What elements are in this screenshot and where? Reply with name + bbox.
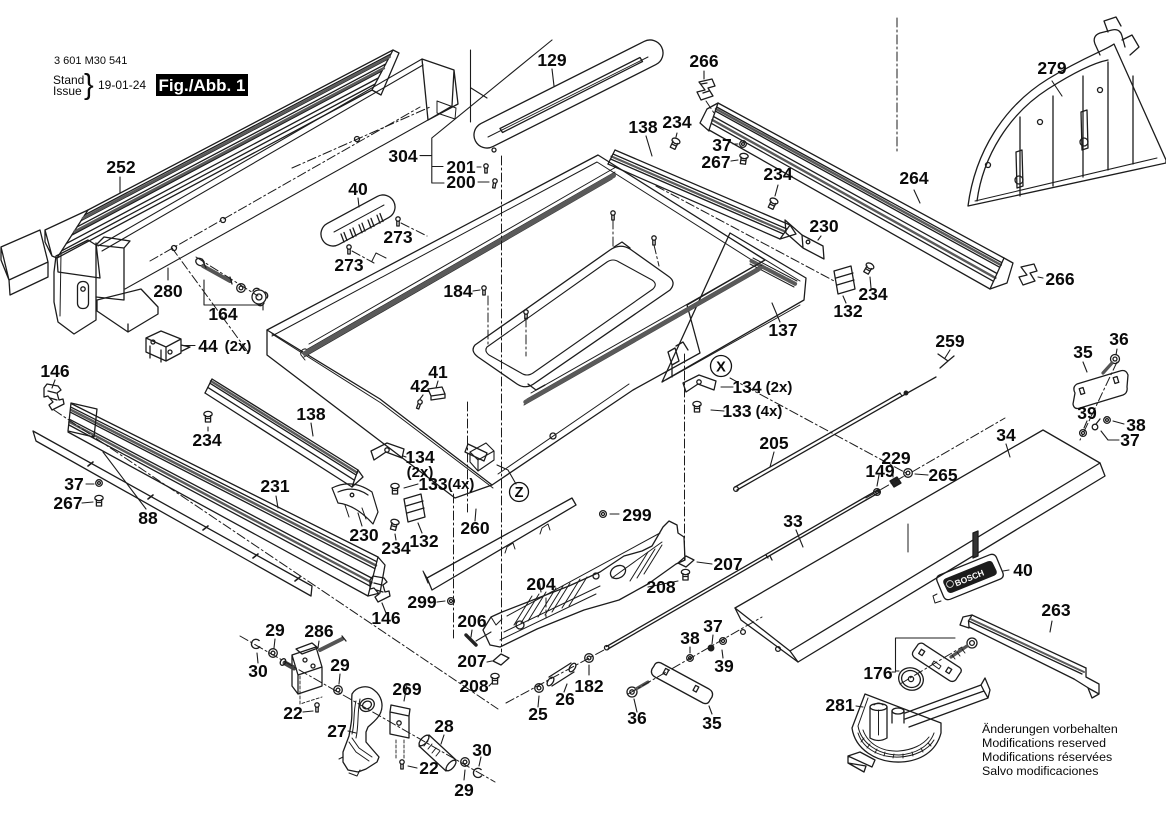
svg-text:29: 29 [454,780,474,800]
svg-text:266: 266 [1045,269,1074,289]
svg-text:40: 40 [1013,560,1033,580]
svg-text:133: 133 [722,401,751,421]
svg-text:(2x): (2x) [766,379,793,396]
svg-text:30: 30 [248,661,268,681]
svg-text:29: 29 [330,655,350,675]
svg-text:42: 42 [410,376,430,396]
svg-text:149: 149 [865,461,894,481]
svg-text:137: 137 [768,320,797,340]
svg-text:230: 230 [809,216,838,236]
svg-text:208: 208 [459,676,488,696]
svg-text:132: 132 [409,531,438,551]
svg-text:281: 281 [825,695,854,715]
svg-text:184: 184 [443,281,472,301]
svg-text:27: 27 [327,721,346,741]
svg-text:299: 299 [622,505,651,525]
svg-text:22: 22 [419,758,439,778]
svg-text:37: 37 [1120,430,1139,450]
svg-text:33: 33 [783,511,803,531]
svg-text:35: 35 [1073,342,1093,362]
svg-text:132: 132 [833,301,862,321]
svg-text:234: 234 [662,112,691,132]
svg-text:19-01-24: 19-01-24 [98,78,146,92]
svg-text:26: 26 [555,689,575,709]
svg-text:208: 208 [646,577,675,597]
svg-text:264: 264 [899,168,928,188]
svg-text:(2x): (2x) [225,338,252,355]
svg-text:206: 206 [457,611,486,631]
svg-text:259: 259 [935,331,964,351]
svg-text:36: 36 [627,708,647,728]
svg-text:207: 207 [713,554,742,574]
svg-text:279: 279 [1037,58,1066,78]
svg-text:265: 265 [928,465,957,485]
svg-text:231: 231 [260,476,289,496]
svg-text:182: 182 [574,676,603,696]
svg-text:Änderungen vorbehalten: Änderungen vorbehalten [982,722,1118,736]
svg-text:3 601 M30 541: 3 601 M30 541 [54,55,127,67]
svg-text:38: 38 [680,628,700,648]
svg-text:299: 299 [407,592,436,612]
svg-text:138: 138 [296,404,325,424]
svg-text:}: } [84,69,94,101]
svg-text:Fig./Abb. 1: Fig./Abb. 1 [159,76,246,95]
svg-text:28: 28 [434,716,454,736]
svg-text:129: 129 [537,50,566,70]
svg-text:134: 134 [732,377,761,397]
svg-text:22: 22 [283,703,303,723]
svg-text:200: 200 [446,172,475,192]
svg-text:Modifications reserved: Modifications reserved [982,736,1106,750]
svg-text:267: 267 [53,493,82,513]
svg-text:30: 30 [472,740,492,760]
svg-text:286: 286 [304,621,333,641]
svg-text:Salvo modificaciones: Salvo modificaciones [982,764,1098,778]
svg-text:40: 40 [348,179,368,199]
svg-text:204: 204 [526,574,555,594]
svg-text:267: 267 [701,152,730,172]
svg-text:Z: Z [515,485,524,501]
svg-text:44: 44 [198,336,218,356]
svg-text:35: 35 [702,713,722,733]
svg-text:Modifications réservées: Modifications réservées [982,750,1112,764]
svg-text:34: 34 [996,425,1016,445]
svg-text:Issue: Issue [53,84,82,98]
svg-text:266: 266 [689,51,718,71]
svg-text:304: 304 [388,146,417,166]
svg-text:88: 88 [138,508,158,528]
svg-text:252: 252 [106,157,135,177]
svg-text:(4x): (4x) [756,403,783,420]
svg-text:234: 234 [763,164,792,184]
svg-text:234: 234 [192,430,221,450]
svg-text:25: 25 [528,704,548,724]
svg-text:230: 230 [349,525,378,545]
svg-text:36: 36 [1109,329,1129,349]
svg-text:205: 205 [759,433,788,453]
svg-text:138: 138 [628,117,657,137]
svg-text:269: 269 [392,679,421,699]
svg-text:37: 37 [64,474,83,494]
svg-text:260: 260 [460,518,489,538]
svg-text:X: X [716,360,726,376]
svg-text:263: 263 [1041,600,1070,620]
svg-text:176: 176 [863,663,892,683]
svg-text:29: 29 [265,620,285,640]
svg-text:(4x): (4x) [448,476,475,493]
svg-text:164: 164 [208,304,237,324]
svg-text:273: 273 [334,255,363,275]
svg-text:234: 234 [858,284,887,304]
svg-text:280: 280 [153,281,182,301]
svg-text:146: 146 [371,608,400,628]
svg-text:207: 207 [457,651,486,671]
svg-text:41: 41 [428,362,448,382]
svg-text:37: 37 [703,616,722,636]
svg-text:273: 273 [383,227,412,247]
svg-text:133: 133 [418,474,447,494]
svg-text:39: 39 [714,656,734,676]
svg-text:39: 39 [1077,403,1097,423]
svg-text:234: 234 [381,538,410,558]
svg-text:146: 146 [40,361,69,381]
